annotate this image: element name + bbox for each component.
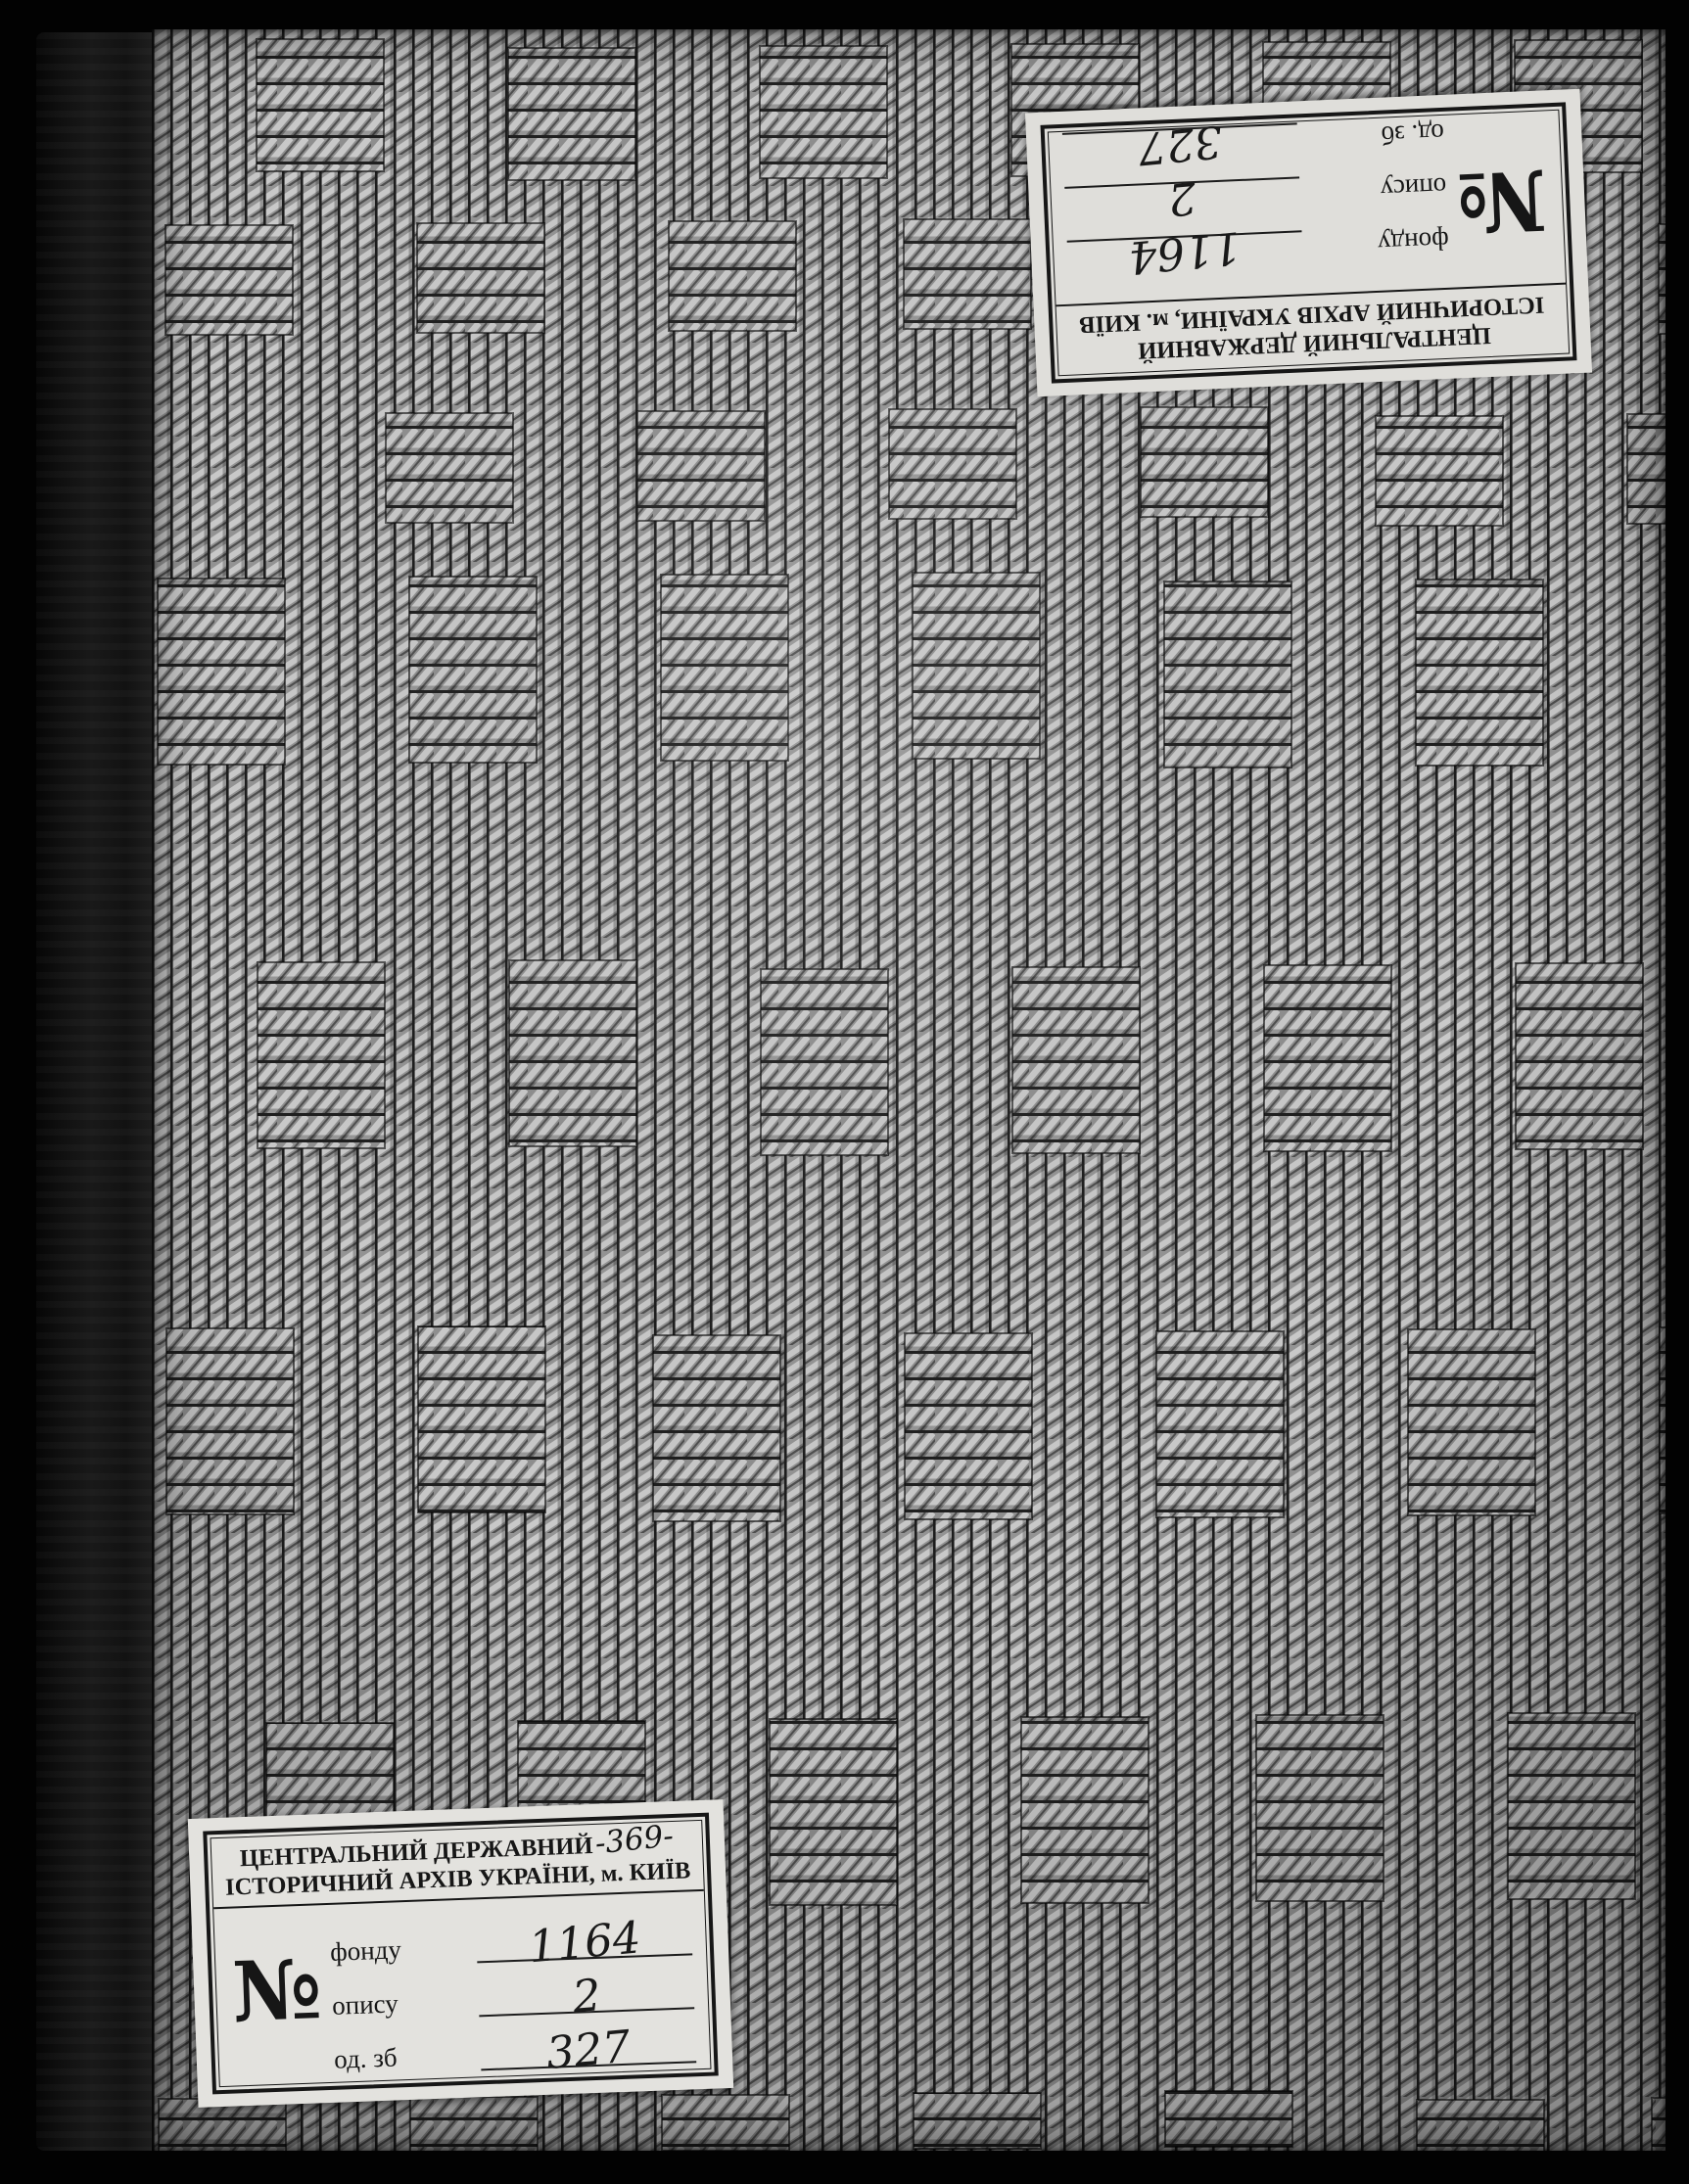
odzb-row-line: 327 bbox=[480, 2022, 696, 2070]
book-cover: ЦЕНТРАЛЬНИЙ ДЕРЖАВНИЙ ІСТОРИЧНИЙ АРХІВ У… bbox=[152, 29, 1666, 2151]
opys-number-handwritten: 2 bbox=[571, 1976, 602, 2017]
archival-book-photo: ЦЕНТРАЛЬНИЙ ДЕРЖАВНИЙ ІСТОРИЧНИЙ АРХІВ У… bbox=[0, 0, 1689, 2184]
label-rows: фонду 1164 опису 2 од. зб 327 bbox=[1062, 116, 1451, 297]
odzb-row-label: од. зб bbox=[334, 2041, 482, 2075]
odzb-row-line: 327 bbox=[1062, 122, 1298, 172]
label-body: № фонду 1164 опису 2 од. зб bbox=[1048, 100, 1566, 305]
archive-label-top: ЦЕНТРАЛЬНИЙ ДЕРЖАВНИЙ ІСТОРИЧНИЙ АРХІВ У… bbox=[1025, 89, 1592, 396]
label-number-sign: № bbox=[231, 1947, 334, 2045]
label-inner-border: ЦЕНТРАЛЬНИЙ ДЕРЖАВНИЙ ІСТОРИЧНИЙ АРХІВ У… bbox=[1048, 110, 1570, 377]
odzb-number-handwritten: 327 bbox=[545, 2028, 633, 2073]
label-body: № фонду 1164 опису 2 од. зб bbox=[213, 1891, 711, 2092]
label-inner-border: ЦЕНТРАЛЬНИЙ ДЕРЖАВНИЙ-369- ІСТОРИЧНИЙ АР… bbox=[210, 1820, 711, 2087]
opys-number-handwritten: 2 bbox=[1166, 178, 1197, 218]
archive-label-bottom: ЦЕНТРАЛЬНИЙ ДЕРЖАВНИЙ-369- ІСТОРИЧНИЙ АР… bbox=[188, 1799, 733, 2108]
odzb-number-handwritten: 327 bbox=[1136, 121, 1223, 166]
label-annotation-369: -369- bbox=[595, 1835, 674, 1844]
label-rows: фонду 1164 опису 2 од. зб 327 bbox=[329, 1899, 697, 2075]
odzb-row-label: од. зб bbox=[1296, 116, 1444, 153]
label-number-sign: № bbox=[1445, 147, 1548, 245]
book-spine bbox=[36, 32, 152, 2151]
fond-number-handwritten: 1164 bbox=[527, 1919, 641, 1966]
label-border: ЦЕНТРАЛЬНИЙ ДЕРЖАВНИЙ ІСТОРИЧНИЙ АРХІВ У… bbox=[1040, 102, 1576, 383]
fond-number-handwritten: 1164 bbox=[1127, 228, 1243, 276]
label-border: ЦЕНТРАЛЬНИЙ ДЕРЖАВНИЙ-369- ІСТОРИЧНИЙ АР… bbox=[203, 1813, 719, 2095]
label-row-fond: фонду 1164 bbox=[329, 1901, 692, 1969]
